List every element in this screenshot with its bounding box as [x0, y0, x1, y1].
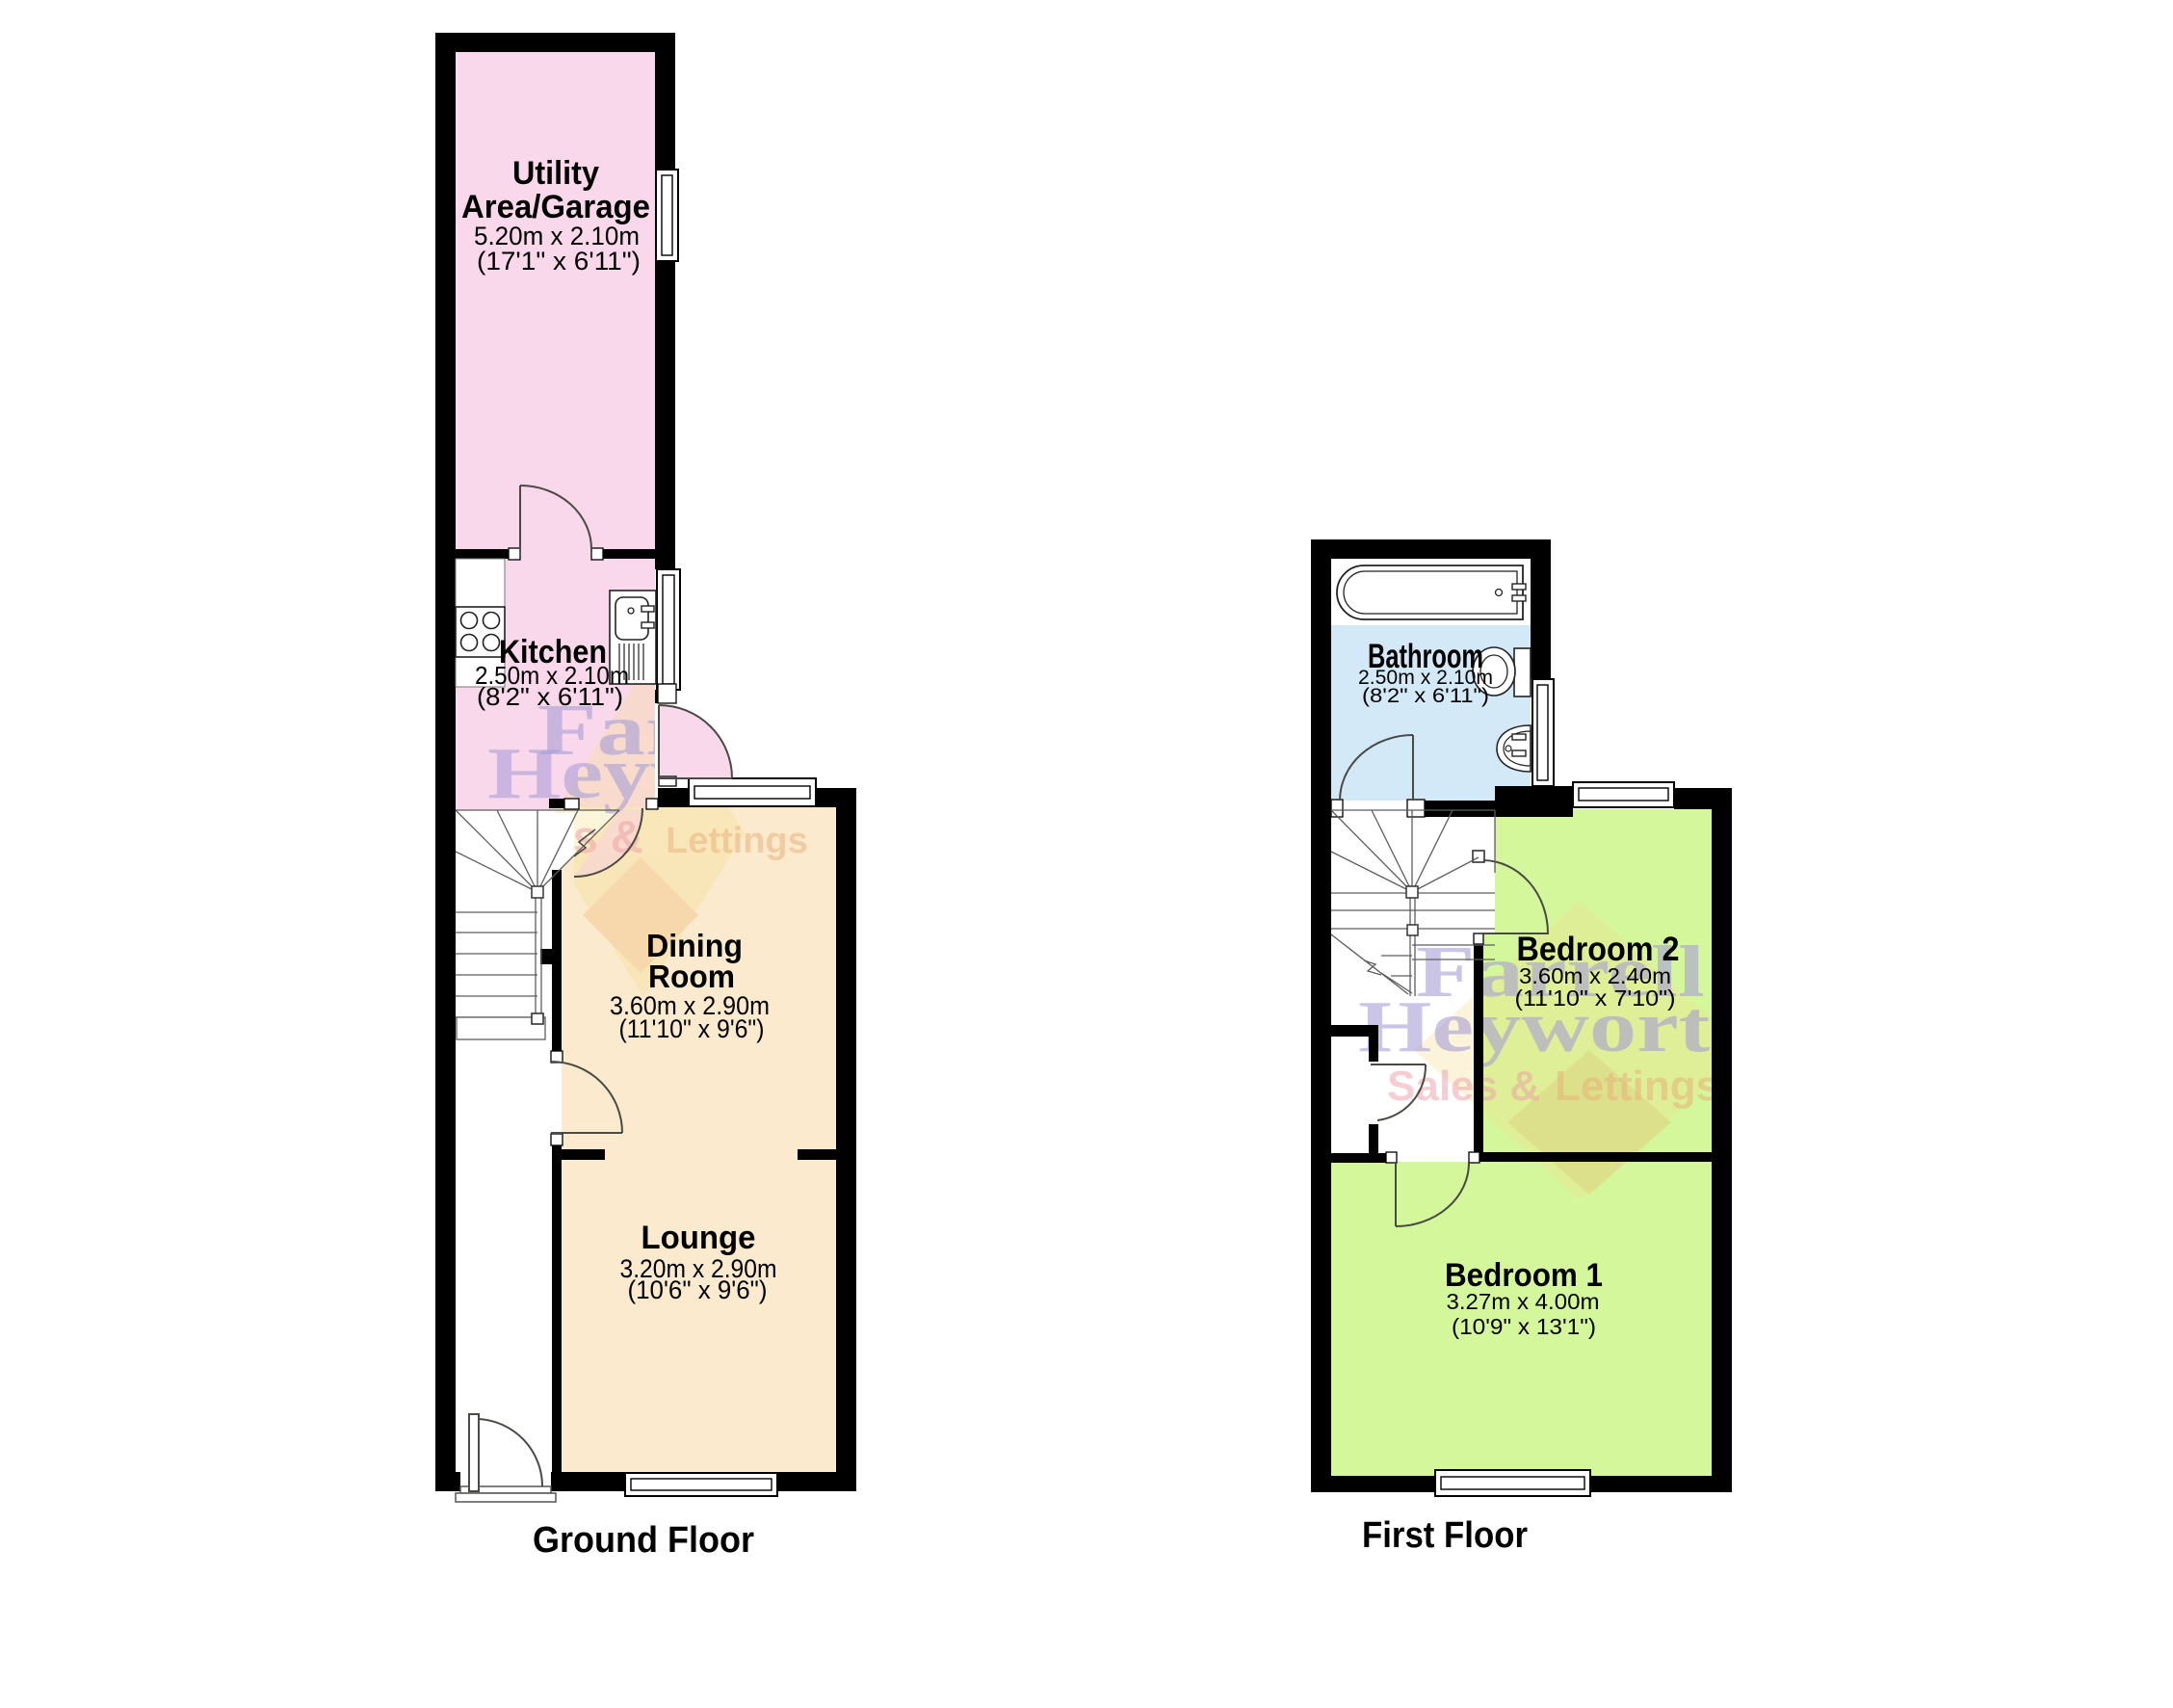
svg-text:(10'9" x 13'1"): (10'9" x 13'1") [1452, 1314, 1596, 1339]
svg-text:(11'10" x 9'6"): (11'10" x 9'6") [619, 1014, 765, 1043]
svg-text:Sales &: Sales & [1387, 1063, 1540, 1110]
svg-text:Room: Room [648, 959, 735, 994]
svg-text:(8'2" x 6'11"): (8'2" x 6'11") [477, 682, 623, 711]
svg-text:(11'10" x 7'10"): (11'10" x 7'10") [1515, 985, 1676, 1011]
svg-text:Ground Floor: Ground Floor [533, 1520, 754, 1561]
svg-text:(8'2" x 6'11"): (8'2" x 6'11") [1362, 685, 1489, 707]
svg-text:Lettings: Lettings [1555, 1063, 1719, 1110]
svg-text:First Floor: First Floor [1362, 1515, 1528, 1556]
svg-text:(17'1" x 6'11"): (17'1" x 6'11") [477, 247, 641, 276]
svg-text:Lounge: Lounge [641, 1220, 756, 1256]
svg-text:Utility: Utility [512, 155, 599, 192]
svg-text:Area/Garage: Area/Garage [461, 189, 650, 225]
svg-text:3.27m x 4.00m: 3.27m x 4.00m [1447, 1289, 1600, 1314]
svg-text:Lettings: Lettings [666, 821, 808, 861]
svg-text:(10'6" x 9'6"): (10'6" x 9'6") [628, 1275, 768, 1304]
